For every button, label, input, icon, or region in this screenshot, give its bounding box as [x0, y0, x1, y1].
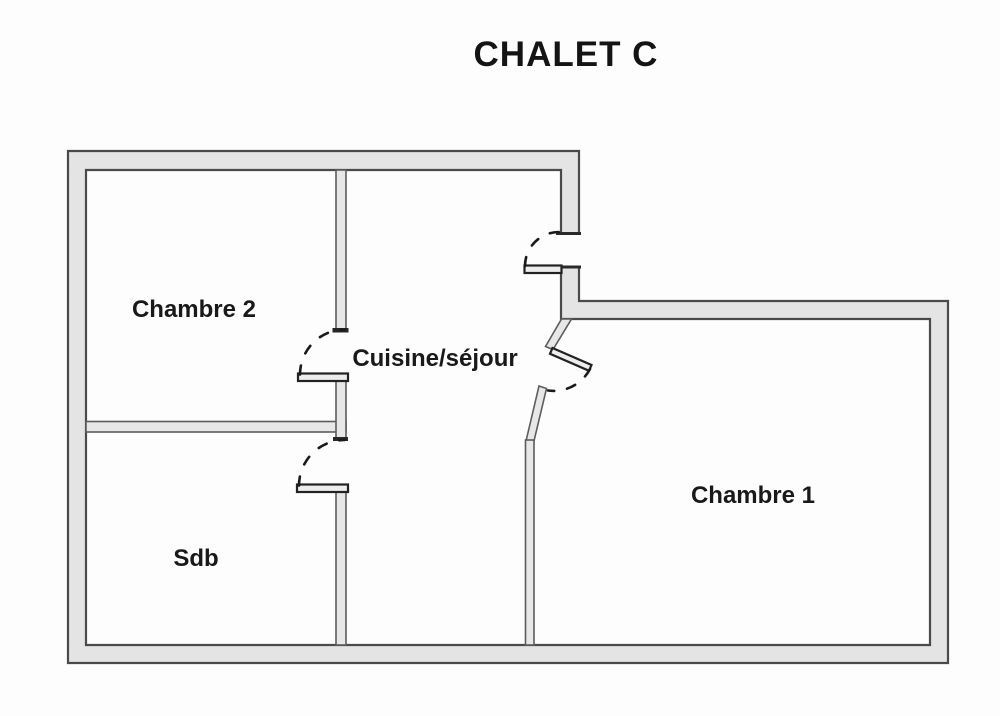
entrance-door-opening [556, 235, 583, 267]
interior-wall-mid-segment [336, 381, 346, 440]
chambre1-door-leaf [550, 348, 592, 371]
entrance-door-swing-arc [525, 232, 559, 266]
interior-wall-chambre2-sdb [86, 422, 346, 433]
entrance-door-leaf [525, 266, 562, 274]
room-label-chambre2: Chambre 2 [132, 296, 256, 323]
interior-wall-chambre1-top-slant [526, 386, 547, 443]
floorplan-canvas: CHALET C Chambre 2 Cuisine/séjour [0, 0, 1000, 716]
interior-wall-sdb-cuisine [336, 492, 346, 645]
room-label-sdb: Sdb [173, 545, 218, 572]
floorplan-svg: CHALET C Chambre 2 Cuisine/séjour [0, 0, 1000, 716]
room-label-chambre1: Chambre 1 [691, 482, 815, 509]
chambre1-door-swing-arc [548, 369, 590, 391]
room-label-cuisine-sejour: Cuisine/séjour [352, 345, 517, 372]
interior-wall-chambre2-cuisine [336, 170, 346, 330]
chambre2-door-swing-arc [300, 330, 345, 375]
sdb-door-leaf [297, 485, 348, 493]
sdb-door-swing-arc [299, 440, 345, 486]
exterior-wall [68, 151, 948, 663]
chambre2-door-leaf [298, 374, 348, 382]
wall-stub-chambre1-door [546, 319, 572, 350]
plan-title: CHALET C [474, 35, 659, 74]
interior-wall-chambre1-cuisine [526, 440, 535, 645]
